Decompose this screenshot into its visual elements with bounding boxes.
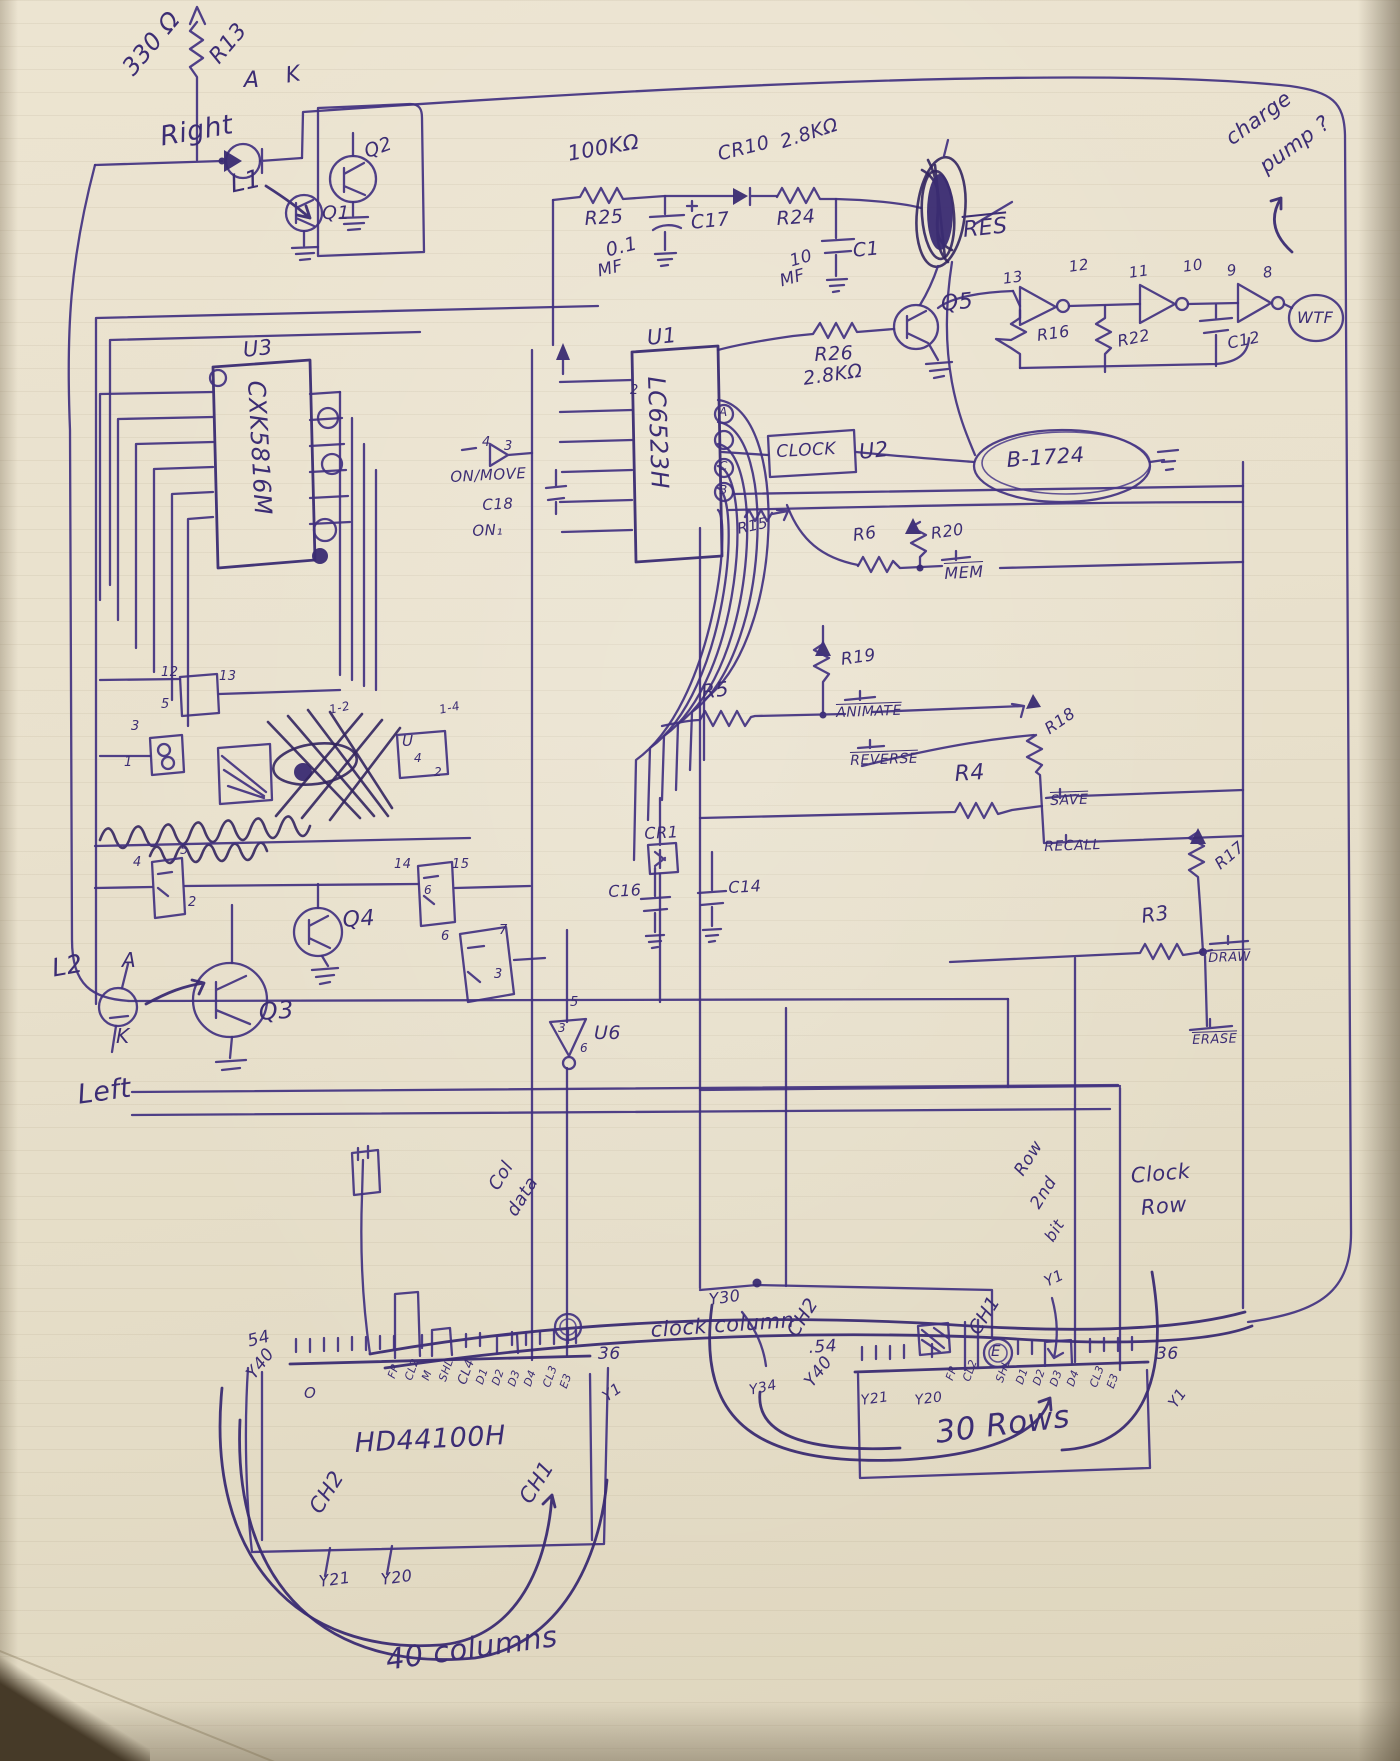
pin-u2l-4: 4 [414,752,422,764]
pin-u1c-c: C [719,460,728,472]
label-y21-right: Y21 [860,1390,890,1408]
value-r13: 330 Ω [118,7,184,79]
ref-c12: C12 [1226,329,1262,352]
pinlabel-r-d3: D3 [1048,1369,1064,1388]
pin-ff1-2: 2 [188,896,197,909]
ref-cr10: CR10 [716,133,772,164]
label-animate: ANIMATE [836,704,902,720]
note-1-2: 1-2 [328,700,351,716]
note-right: Right [158,111,235,150]
part-u3: CXK5816M [244,380,275,516]
pin-inv-9: 9 [1226,263,1238,279]
pin-u2l-2: 2 [434,766,442,778]
pin-inv-11: 11 [1128,263,1150,281]
value-c17-a: 0.1 [604,234,639,260]
pinlabel-r-d2: D2 [1031,1368,1047,1387]
pin-g1: 1 [124,756,133,769]
ref-r22: R22 [1116,327,1152,350]
ref-q2: Q2 [362,134,395,161]
ref-r16: R16 [1036,323,1071,343]
schematic-page: 330 ΩR13AKRightL1Q2Q1100KΩR25C170.1MFCR1… [0,0,1400,1761]
label-y1-right-top: Y1 [1042,1268,1066,1290]
label-draw: DRAW [1208,951,1251,965]
label-ch1-right: CH1 [966,1293,1004,1338]
pin-inv-10: 10 [1182,257,1204,275]
pin-ff2-14: 14 [394,858,412,871]
pin-ff1-5: 5 [180,844,189,857]
pinlabel-r-cl2: CL2 [961,1358,979,1383]
pin-e-circled: E [991,1344,1001,1359]
table-corner-shadow [0,1651,150,1761]
ref-c14: C14 [728,878,762,896]
pinlabel-l-m: M [420,1369,434,1382]
value-c17-b: MF [596,258,625,281]
pin-inv-8: 8 [1262,265,1274,281]
value-r25: 100KΩ [566,131,641,164]
ref-c16: C16 [608,882,642,900]
ref-r5: R5 [700,678,730,702]
ref-r18: R18 [1042,705,1078,737]
pinlabel-r-d4: D4 [1065,1369,1081,1388]
label-clock-row-1: Clock [1130,1161,1191,1187]
ref-r19: R19 [840,647,877,669]
pin-u1-2: 2 [630,384,639,397]
pin-u1c-a: A [719,406,728,418]
pinlabel-l-fr: FR [386,1362,401,1380]
label-clock-column: clock column [650,1310,795,1341]
ref-u2: U2 [858,439,890,463]
label-y20-right: Y20 [914,1390,944,1408]
pin-g12: 12 [161,666,179,679]
ref-l2: L2 [50,951,85,981]
label-ch1-left: CH1 [516,1458,558,1508]
label-row-bit-3: bit [1042,1217,1067,1244]
pinlabel-l-e3: E3 [558,1372,573,1390]
label-30-rows: 30 Rows [934,1402,1072,1449]
label-y20-left: Y20 [380,1568,414,1588]
label-recall: RECALL [1044,838,1101,854]
pinlabel-l-d1: D1 [474,1367,490,1386]
pin-u6-5: 5 [570,996,579,1009]
label-y1-left: Y1 [600,1381,625,1405]
ref-c17: C17 [690,210,731,233]
label-ch2-left: CH2 [306,1468,348,1518]
ref-r20: R20 [930,521,965,541]
pin-ff3-7: 7 [499,924,508,937]
led2-anode-label: A [122,950,136,970]
pinlabel-l-shl: SHL [437,1357,455,1382]
pin-ff2-15: 15 [452,858,470,871]
ref-q4: Q4 [342,908,376,932]
ref-l1: L1 [228,166,263,197]
handwritten-labels: 330 ΩR13AKRightL1Q2Q1100KΩR25C170.1MFCR1… [0,0,1400,1761]
note-left: Left [76,1075,133,1109]
pin-u1-3: 3 [504,440,513,453]
pin-36-left: 36 [598,1346,621,1363]
ref-r25: R25 [584,207,624,229]
label-res: RES [962,215,1009,242]
label-y40-left: Y40 [244,1346,278,1383]
ref-q3: Q3 [258,998,295,1024]
label-wtf: WTF [1297,310,1333,326]
value-r26: 2.8KΩ [802,362,864,389]
pinlabel-l-cl2: CL2 [403,1357,421,1382]
value-c1-b: MF [778,267,807,290]
pin-ff3-3: 3 [494,968,503,981]
pin-inv-13: 13 [1002,269,1024,287]
pin-o-left: O [304,1386,316,1401]
pin-ff1-4: 4 [133,856,142,869]
note-1-4: 1-4 [438,700,461,716]
pin-54-left: 54 [246,1329,272,1351]
pin-g5: 5 [161,698,170,711]
pinlabel-r-shl: SHL [994,1358,1012,1383]
pinlabel-l-d3: D3 [506,1369,522,1388]
label-y21-left: Y21 [318,1570,352,1590]
part-hd44100h: HD44100H [354,1422,507,1457]
pinlabel-l-d2: D2 [490,1368,506,1387]
value-r24: 2.8KΩ [778,116,841,153]
ref-r13: R13 [206,20,252,68]
label-save: SAVE [1050,793,1089,808]
label-erase: ERASE [1192,1032,1238,1047]
pin-g13: 13 [219,670,237,683]
pin-g3: 3 [131,720,140,733]
label-y1-right-bottom: Y1 [1166,1386,1190,1411]
label-y34: Y34 [748,1378,778,1397]
label-clock-row-2: Row [1140,1194,1188,1219]
part-u1: LC6523H [644,376,672,490]
ref-u1: U1 [646,325,678,349]
pin-u1-4: 4 [482,436,491,449]
label-ch2-right: CH2 [784,1295,822,1340]
label-row-bit-1: Row [1012,1138,1046,1179]
label-clock-box: CLOCK [776,441,837,461]
led1-cathode-label: K [284,63,303,87]
led2-cathode-label: K [116,1026,130,1046]
label-row-bit-2: 2nd [1028,1174,1060,1212]
ref-r4: R4 [954,762,986,786]
ref-q5: Q5 [940,291,974,316]
ref-r24: R24 [776,207,816,229]
note-on1: ON₁ [472,522,503,539]
pin-ff3-6: 6 [441,930,450,943]
pin-36-right: 36 [1156,1346,1179,1363]
ref-r6: R6 [852,525,878,545]
ref-c18: C18 [482,496,514,513]
ref-u6: U6 [594,1024,621,1043]
ref-r15: R15 [736,516,769,537]
label-reverse: REVERSE [850,752,918,768]
pin-ff2-6: 6 [424,884,432,896]
part-b1724: B-1724 [1006,445,1085,471]
pinlabel-r-d1: D1 [1014,1367,1030,1386]
ref-r17: R17 [1212,839,1248,872]
label-40-columns: 40 columns [384,1622,559,1675]
label-y40-right: Y40 [802,1354,836,1391]
ref-u2-left: U [402,734,413,749]
label-y30: Y30 [708,1288,742,1308]
label-mem: MEM [944,564,984,582]
note-on-move: ON/MOVE [450,466,527,485]
pinlabel-l-d4: D4 [522,1369,538,1388]
pinlabel-r-e3: E3 [1105,1372,1120,1390]
pin-u6-6: 6 [580,1042,588,1054]
pin-inv-12: 12 [1068,257,1090,275]
label-col-data-1: Col [486,1158,517,1193]
pinlabel-r-fr: FR [944,1364,959,1382]
ref-c1: C1 [852,239,880,261]
ref-q1: Q1 [322,204,350,223]
ref-u3: U3 [242,337,274,361]
ref-cr1: CR1 [644,824,679,842]
pin-u6-3: 3 [558,1022,566,1034]
ref-r3: R3 [1140,902,1170,926]
led1-anode-label: A [244,70,260,92]
pin-u1c-b: B [719,484,728,496]
